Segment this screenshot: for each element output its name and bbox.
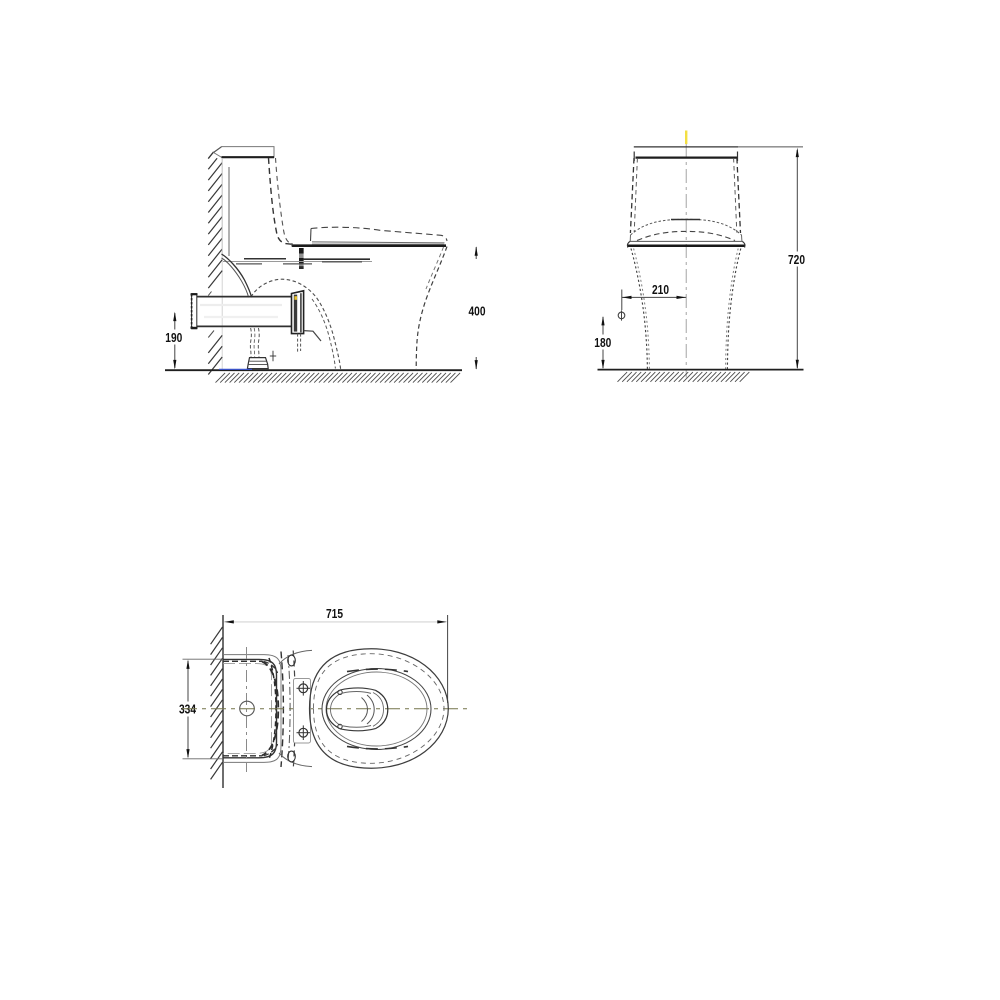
svg-text:400: 400 — [469, 304, 486, 319]
svg-text:720: 720 — [788, 252, 805, 267]
svg-text:715: 715 — [326, 606, 343, 621]
svg-text:190: 190 — [165, 330, 182, 345]
svg-text:180: 180 — [594, 335, 611, 350]
svg-text:210: 210 — [652, 282, 669, 297]
